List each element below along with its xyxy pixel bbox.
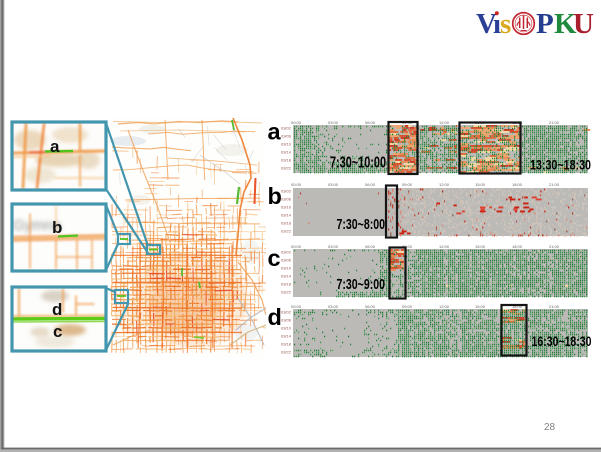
svg-text:09:00: 09:00 — [402, 304, 413, 309]
svg-text:c: c — [53, 322, 62, 341]
svg-text:03/18: 03/18 — [281, 342, 292, 347]
svg-text:03/18: 03/18 — [281, 158, 292, 163]
svg-text:03/22: 03/22 — [281, 166, 292, 171]
svg-text:00:00: 00:00 — [291, 120, 302, 125]
svg-text:03/14: 03/14 — [281, 334, 292, 339]
svg-text:03/02: 03/02 — [281, 189, 292, 194]
svg-text:03/10: 03/10 — [281, 266, 292, 271]
svg-text:18:00: 18:00 — [512, 182, 523, 187]
svg-text:03/10: 03/10 — [281, 142, 292, 147]
svg-text:12:00: 12:00 — [439, 304, 450, 309]
svg-text:s: s — [500, 8, 511, 40]
svg-text:12:00: 12:00 — [439, 244, 450, 249]
svg-text:03/14: 03/14 — [281, 213, 292, 218]
svg-text:03:00: 03:00 — [328, 304, 339, 309]
svg-text:03/18: 03/18 — [281, 282, 292, 287]
svg-text:U: U — [573, 8, 594, 40]
svg-text:00:00: 00:00 — [291, 182, 302, 187]
svg-text:d: d — [268, 304, 282, 330]
svg-text:12:00: 12:00 — [439, 120, 450, 125]
svg-text:15:00: 15:00 — [475, 244, 486, 249]
svg-text:c: c — [268, 245, 281, 271]
svg-text:03/22: 03/22 — [281, 229, 292, 234]
svg-text:a: a — [268, 119, 282, 145]
svg-text:21:00: 21:00 — [549, 304, 560, 309]
svg-text:03/14: 03/14 — [281, 150, 292, 155]
svg-text:21:00: 21:00 — [549, 244, 560, 249]
svg-text:b: b — [52, 218, 62, 237]
svg-text:06:00: 06:00 — [365, 244, 376, 249]
svg-text:03/10: 03/10 — [281, 205, 292, 210]
svg-text:09:00: 09:00 — [402, 182, 413, 187]
svg-text:P: P — [536, 8, 554, 40]
svg-text:7:30~10:00: 7:30~10:00 — [330, 155, 386, 172]
svg-text:03/18: 03/18 — [281, 221, 292, 226]
svg-text:d: d — [52, 300, 62, 319]
svg-text:03:00: 03:00 — [328, 244, 339, 249]
svg-text:7:30~9:00: 7:30~9:00 — [337, 277, 386, 293]
svg-text:03/06: 03/06 — [281, 197, 292, 202]
svg-text:03/02: 03/02 — [281, 126, 292, 131]
svg-text:28: 28 — [544, 422, 556, 433]
svg-text:03/02: 03/02 — [281, 310, 292, 315]
svg-text:06:00: 06:00 — [365, 304, 376, 309]
svg-text:06:00: 06:00 — [365, 182, 376, 187]
svg-text:18:00: 18:00 — [512, 244, 523, 249]
svg-text:03/06: 03/06 — [281, 318, 292, 323]
svg-text:15:00: 15:00 — [475, 182, 486, 187]
svg-text:03/06: 03/06 — [281, 258, 292, 263]
svg-text:03/06: 03/06 — [281, 134, 292, 139]
svg-text:16:30~18:30: 16:30~18:30 — [532, 334, 592, 349]
svg-text:15:00: 15:00 — [475, 304, 486, 309]
svg-text:03:00: 03:00 — [328, 120, 339, 125]
svg-text:03/10: 03/10 — [281, 326, 292, 331]
svg-text:b: b — [268, 183, 282, 209]
svg-text:a: a — [50, 137, 60, 156]
svg-text:03:00: 03:00 — [328, 182, 339, 187]
svg-text:12:00: 12:00 — [439, 182, 450, 187]
svg-text:7:30~8:00: 7:30~8:00 — [337, 217, 386, 233]
svg-text:03/14: 03/14 — [281, 274, 292, 279]
svg-text:00:00: 00:00 — [291, 304, 302, 309]
svg-text:21:00: 21:00 — [549, 120, 560, 125]
svg-text:03/02: 03/02 — [281, 250, 292, 255]
svg-text:03/22: 03/22 — [281, 290, 292, 295]
svg-text:21:00: 21:00 — [549, 182, 560, 187]
svg-text:00:00: 00:00 — [291, 244, 302, 249]
svg-text:03/22: 03/22 — [281, 350, 292, 355]
svg-text:06:00: 06:00 — [365, 120, 376, 125]
svg-text:13:30~18:30: 13:30~18:30 — [530, 156, 591, 172]
